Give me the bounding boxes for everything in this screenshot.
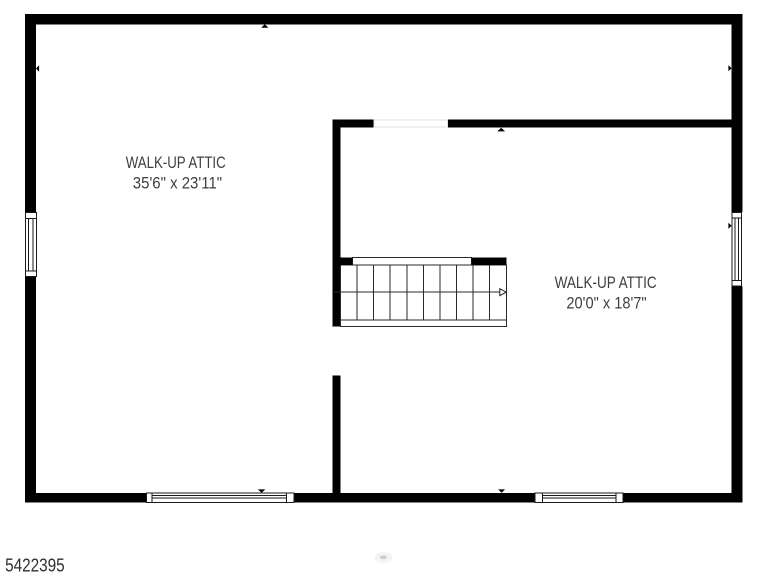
svg-text:35'6" x 23'11": 35'6" x 23'11"	[133, 174, 223, 192]
svg-text:5422395: 5422395	[5, 556, 65, 576]
svg-text:WALK-UP ATTIC: WALK-UP ATTIC	[555, 274, 657, 292]
svg-text:20'0" x 18'7": 20'0" x 18'7"	[566, 294, 646, 312]
svg-text:WALK-UP ATTIC: WALK-UP ATTIC	[126, 154, 226, 172]
